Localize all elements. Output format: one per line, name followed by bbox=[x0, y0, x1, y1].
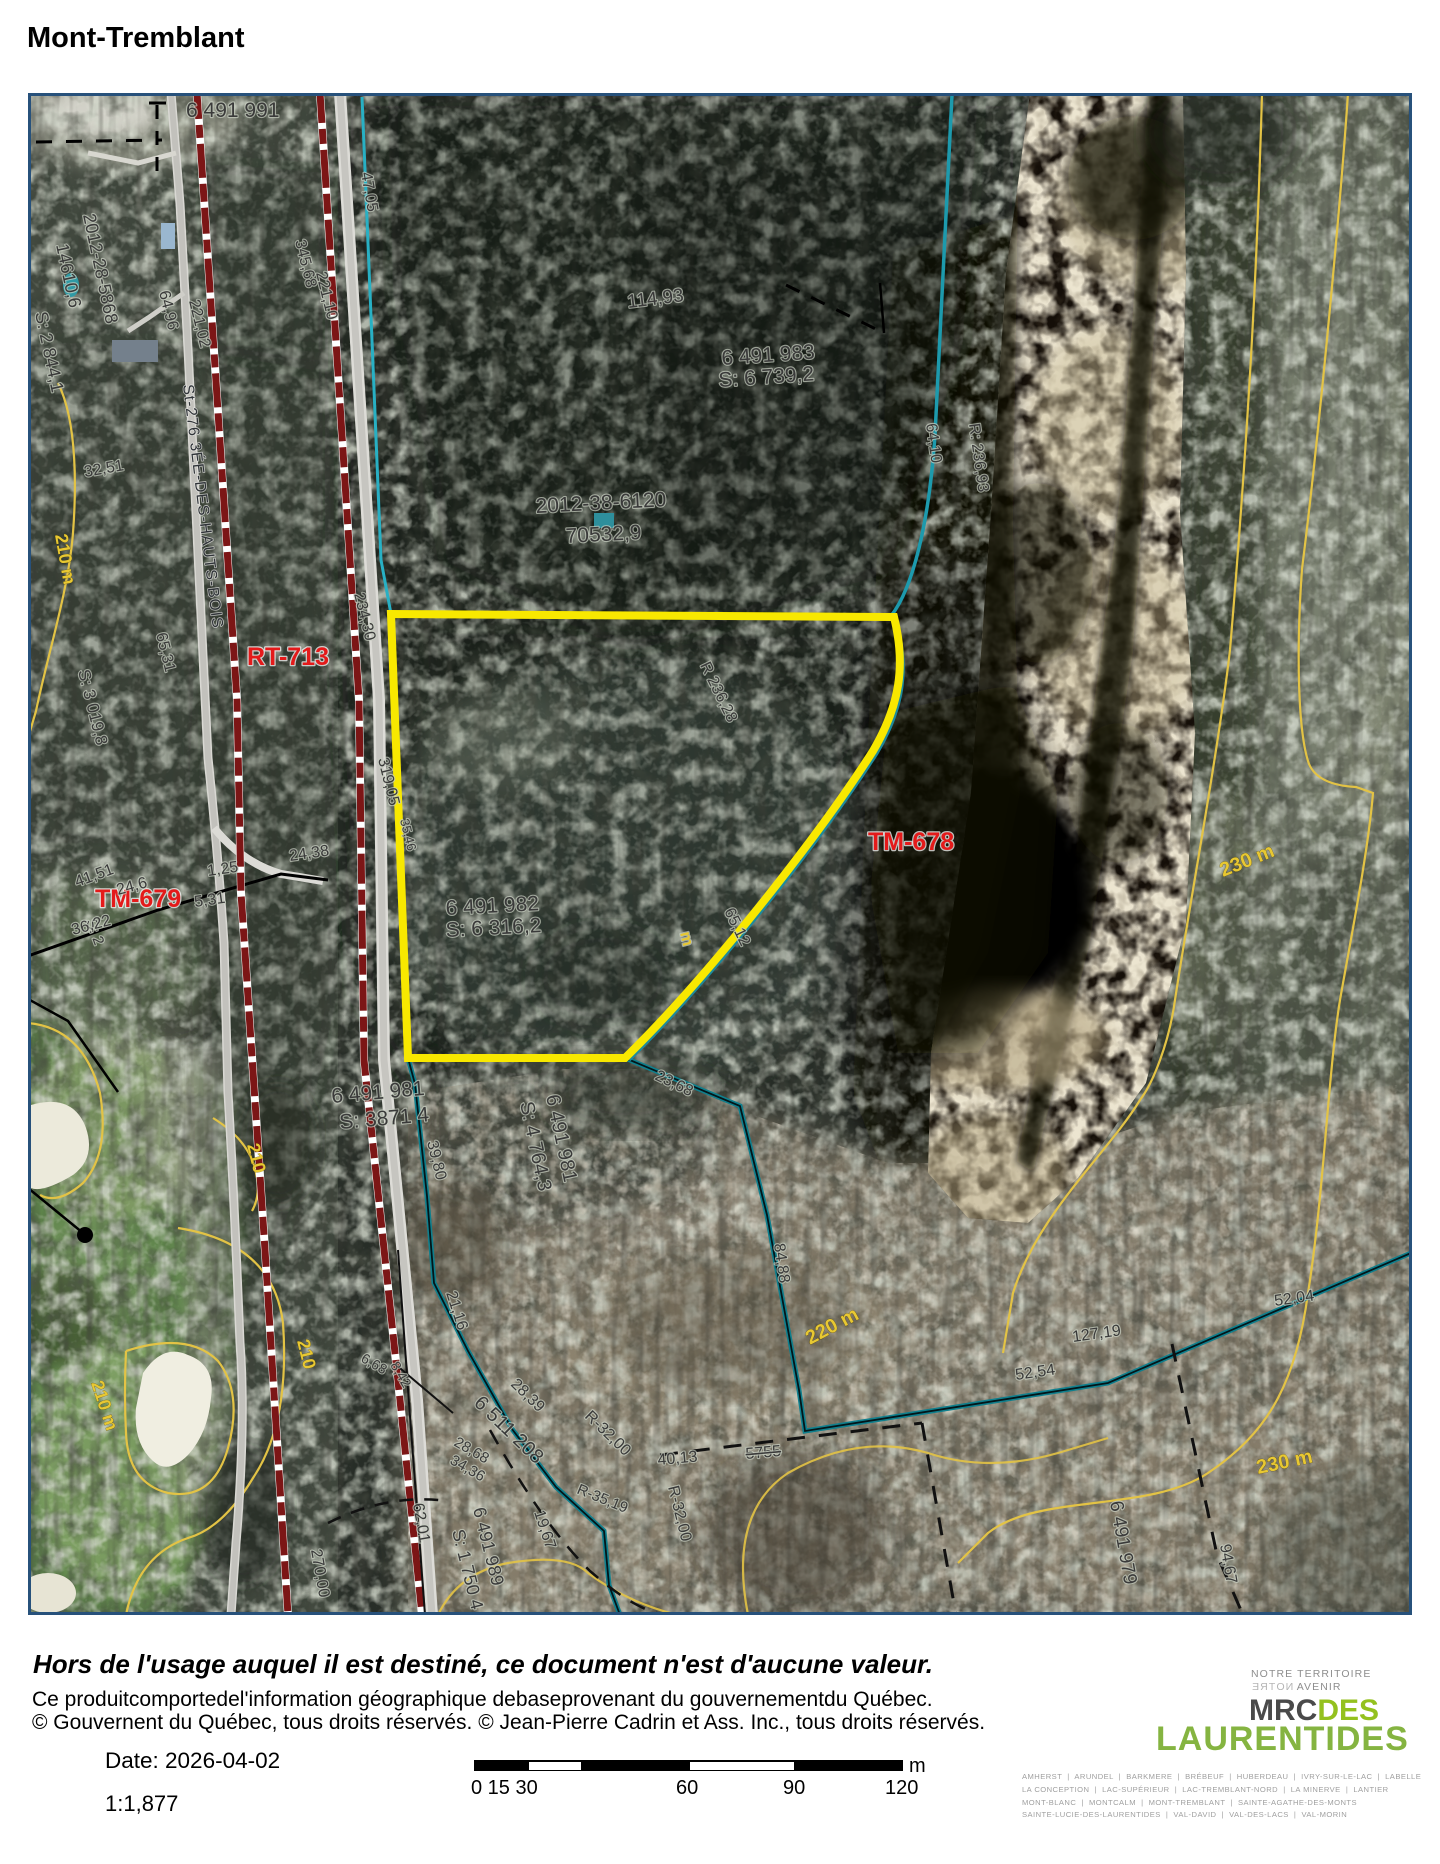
svg-text:40,13: 40,13 bbox=[657, 1449, 698, 1469]
svg-text:TM-678: TM-678 bbox=[868, 828, 954, 856]
svg-text:6 491 991: 6 491 991 bbox=[186, 99, 279, 122]
svg-text:RT-713: RT-713 bbox=[247, 643, 329, 671]
svg-text:5755: 5755 bbox=[745, 1443, 782, 1463]
svg-text:70532,9: 70532,9 bbox=[565, 521, 642, 548]
